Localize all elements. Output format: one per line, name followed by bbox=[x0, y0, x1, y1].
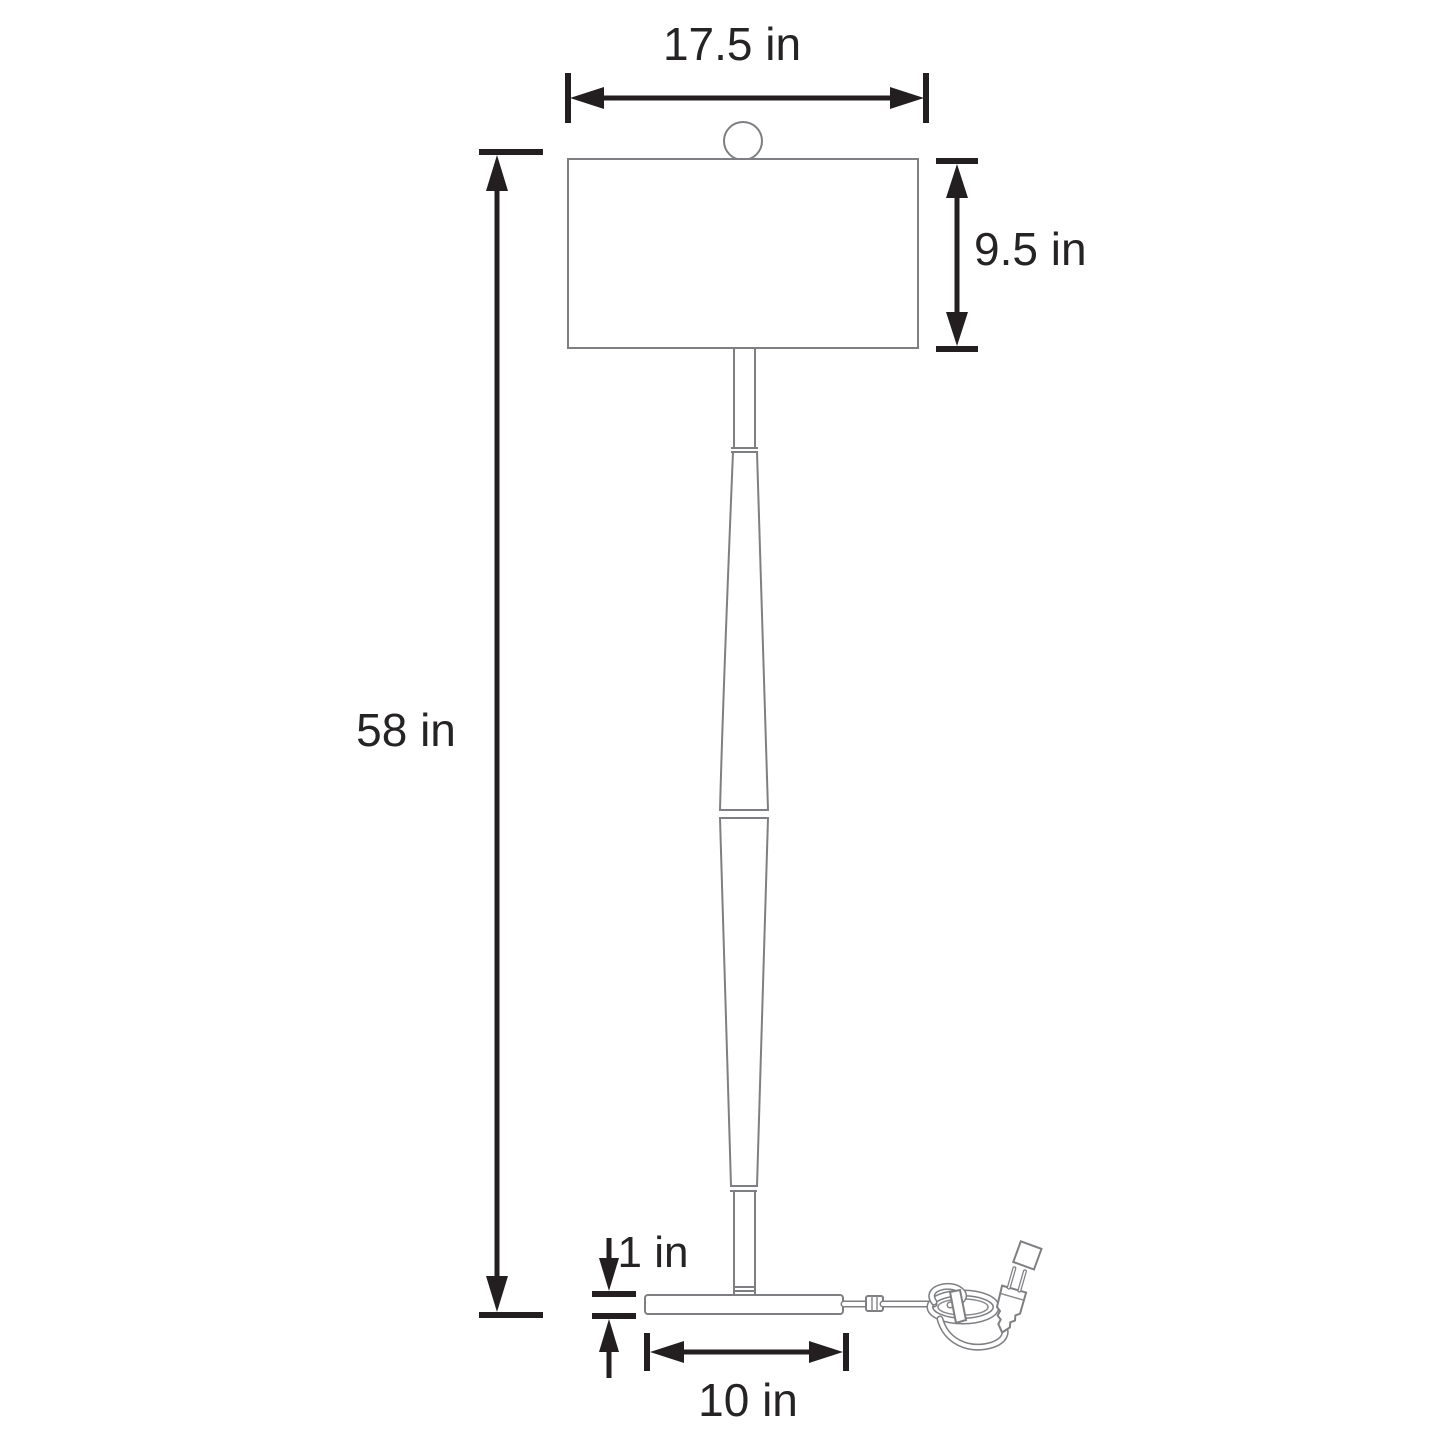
upper-neck-tube bbox=[734, 348, 755, 448]
finial-ball bbox=[724, 122, 762, 160]
spindle-upper bbox=[720, 452, 768, 810]
power-plug bbox=[990, 1240, 1042, 1337]
dim-base-width-label: 10 in bbox=[698, 1374, 798, 1426]
dim-shade-height: 9.5 in bbox=[936, 161, 1087, 349]
dim-shade-width-arrow-right bbox=[890, 87, 924, 109]
dim-shade-width-label: 17.5 in bbox=[663, 18, 801, 70]
floor-lamp-dimension-diagram: 17.5 in 9.5 in 58 in 1 bbox=[0, 0, 1445, 1445]
diagram-canvas: 17.5 in 9.5 in 58 in 1 bbox=[0, 0, 1445, 1445]
dim-shade-width-arrow-left bbox=[570, 87, 604, 109]
dim-base-width-arrow-right bbox=[809, 1341, 843, 1363]
plug-safety-cap bbox=[1013, 1241, 1041, 1269]
dim-base-width-arrow-left bbox=[650, 1341, 684, 1363]
dim-total-height: 58 in bbox=[356, 152, 543, 1315]
dim-base-width: 10 in bbox=[647, 1333, 846, 1426]
dim-shade-height-label: 9.5 in bbox=[974, 223, 1087, 275]
dim-base-thickness-arrow-up bbox=[599, 1319, 619, 1352]
lower-neck-tube bbox=[734, 1191, 755, 1295]
lamp-base bbox=[645, 1295, 843, 1314]
dim-total-height-arrow-up bbox=[486, 155, 508, 191]
lamp-outline bbox=[568, 122, 918, 1314]
dim-base-thickness-arrow-down bbox=[599, 1258, 619, 1291]
dim-total-height-label: 58 in bbox=[356, 704, 456, 756]
dim-shade-width: 17.5 in bbox=[568, 18, 926, 123]
dim-total-height-arrow-down bbox=[486, 1276, 508, 1312]
power-cord bbox=[844, 1286, 1005, 1347]
spindle-lower bbox=[720, 818, 768, 1186]
dim-shade-height-arrow-up bbox=[946, 164, 968, 198]
lamp-shade bbox=[568, 159, 918, 348]
dim-shade-height-arrow-down bbox=[946, 312, 968, 346]
dim-base-thickness-label: 1 in bbox=[618, 1228, 689, 1277]
